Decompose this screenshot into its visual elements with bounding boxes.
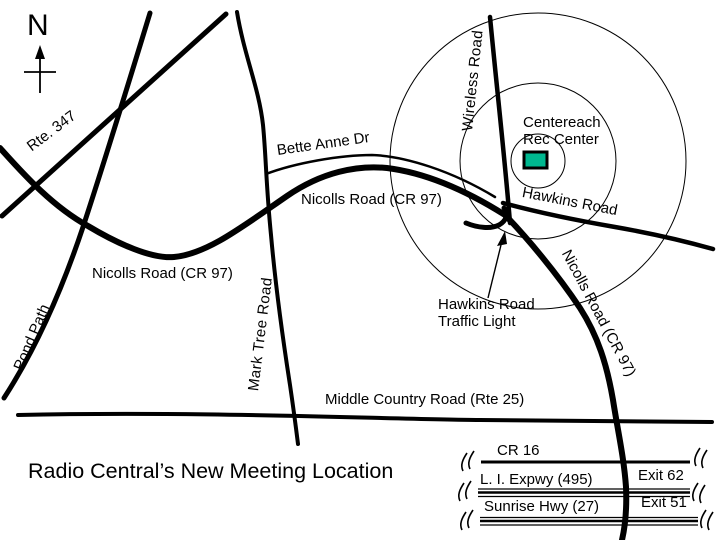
traffic-light-arrowhead <box>497 231 507 246</box>
reference-road-label-cr16: CR 16 <box>497 442 540 459</box>
compass-north-label: N <box>27 10 49 42</box>
traffic-light-callout: Hawkins Road Traffic Light <box>438 296 535 330</box>
traffic-light-arrow <box>488 231 507 298</box>
wireless-road-line <box>490 17 510 223</box>
rec-center-marker <box>524 152 547 168</box>
map-page: N Rte. 347 Pond Path Mark Tree Road Bett… <box>0 0 720 540</box>
north-arrow-icon <box>24 45 56 93</box>
destination-label-line2: Rec Center <box>523 132 601 149</box>
sunrise-road-lines <box>480 518 698 526</box>
traffic-light-callout-line1: Hawkins Road <box>438 296 535 313</box>
reference-road-label-sunrise: Sunrise Hwy (27) <box>484 498 599 515</box>
road-label-nicolls-west: Nicolls Road (CR 97) <box>92 265 233 282</box>
exit-62-label: Exit 62 <box>638 467 684 484</box>
exit-51-label: Exit 51 <box>641 494 687 511</box>
road-label-nicolls-center: Nicolls Road (CR 97) <box>301 191 442 208</box>
traffic-light-callout-line2: Traffic Light <box>438 313 535 330</box>
reference-road-lines <box>459 448 713 530</box>
reference-road-label-lie: L. I. Expwy (495) <box>480 471 593 488</box>
destination-label: Centereach Rec Center <box>523 115 601 148</box>
destination-label-line1: Centereach <box>523 115 601 132</box>
middle-country-road-line <box>18 414 712 422</box>
page-title: Radio Central’s New Meeting Location <box>28 458 393 484</box>
road-label-middle-country: Middle Country Road (Rte 25) <box>325 391 524 408</box>
